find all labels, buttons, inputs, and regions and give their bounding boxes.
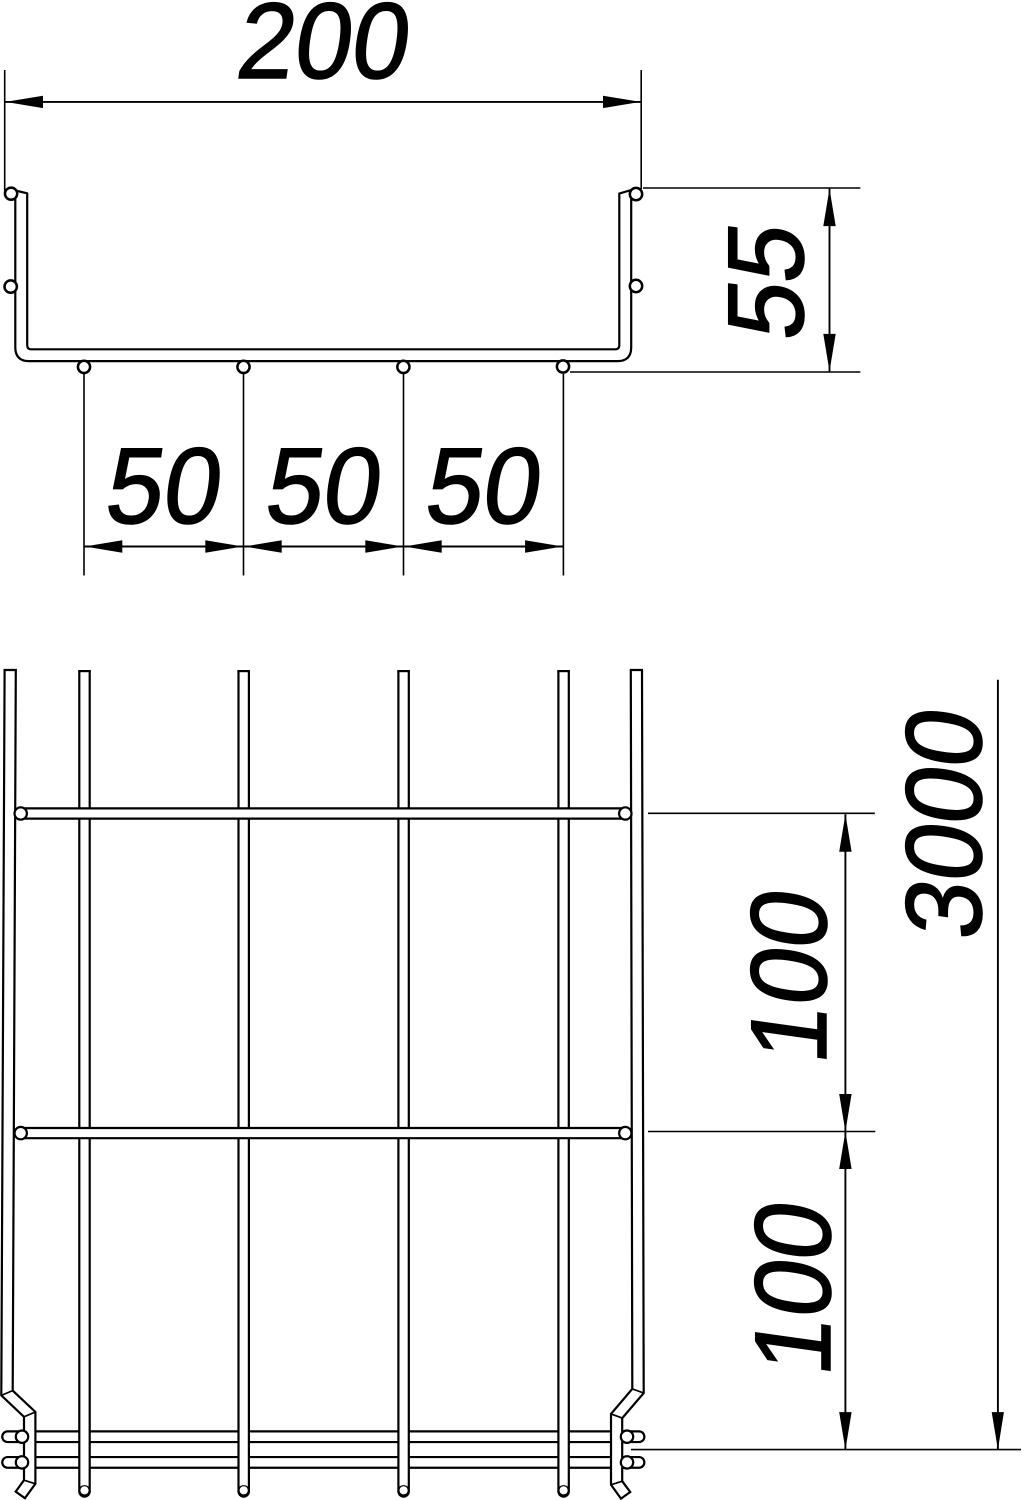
svg-text:3000: 3000 [884,700,1004,945]
svg-text:50: 50 [419,426,550,546]
svg-text:50: 50 [99,426,230,546]
svg-text:100: 100 [729,881,849,1069]
svg-text:100: 100 [733,1193,853,1381]
svg-text:55: 55 [706,215,826,346]
svg-text:200: 200 [231,0,419,101]
svg-text:50: 50 [259,426,390,546]
